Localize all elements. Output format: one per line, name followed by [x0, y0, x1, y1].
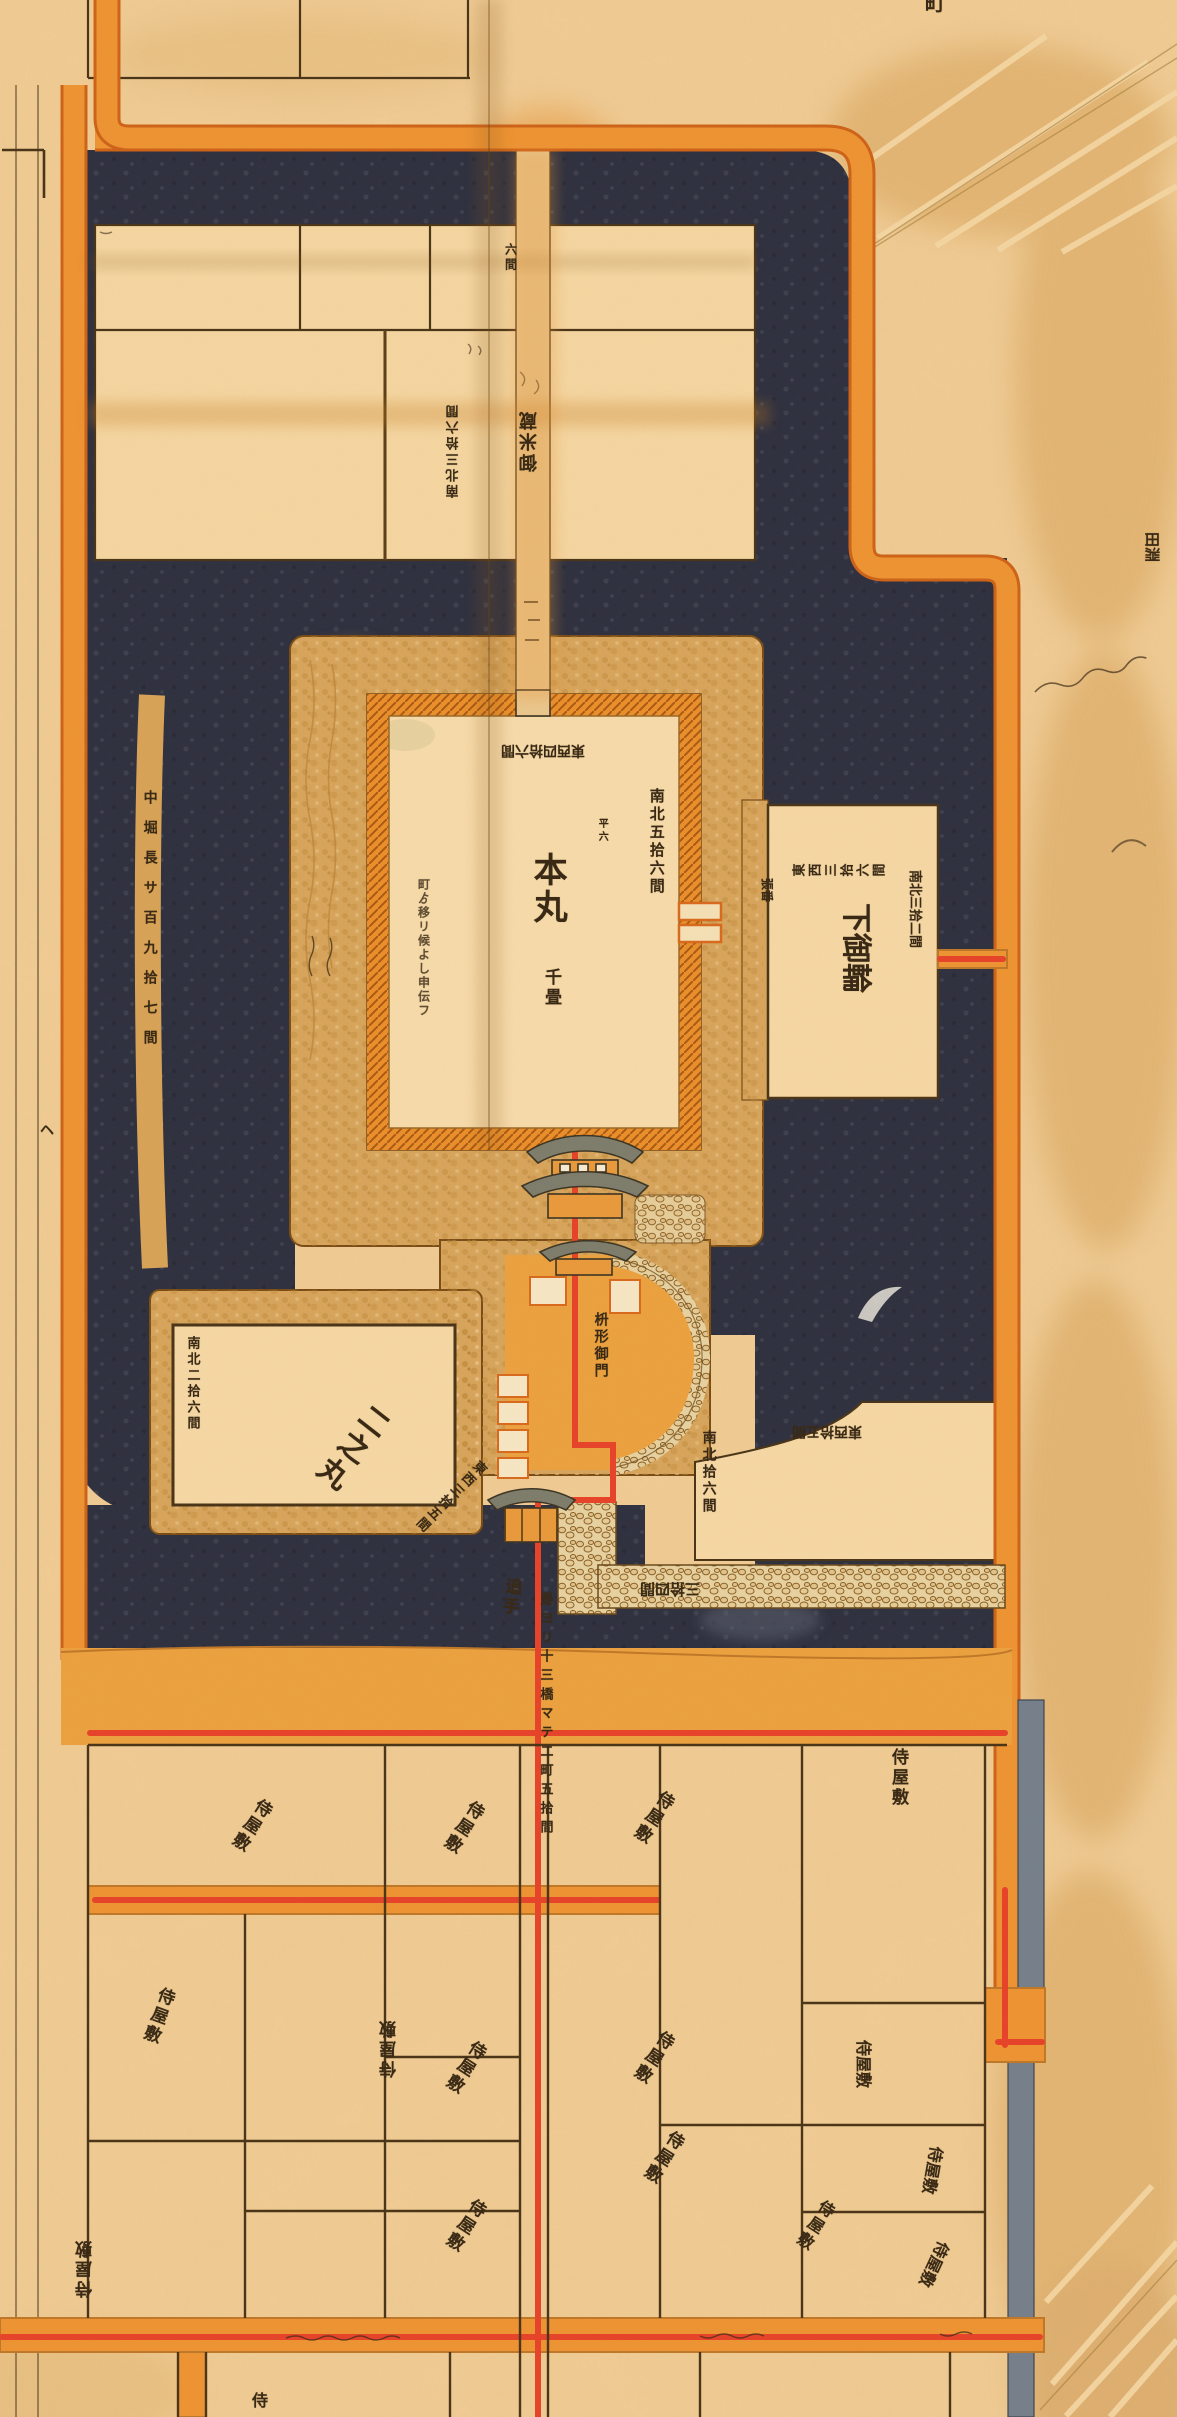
yashiki-l: 侍屋敷: [854, 2040, 872, 2088]
tabuchi-label: 田淵: [1143, 532, 1160, 562]
yashiki-c: 侍屋敷: [437, 1796, 486, 1857]
yashiki-b: 侍屋敷: [627, 1786, 676, 1847]
honmaru-dim-ns: 南北五拾六間: [648, 788, 665, 896]
otemon-label: 追手: [497, 1576, 521, 1618]
ninomaru-dim-ns: 南北二拾六間: [184, 1336, 199, 1432]
seplot-dim-ns: 南北拾六間: [700, 1430, 716, 1515]
bailey-dim-ns: 南北三拾六間: [447, 402, 462, 498]
michinori-note: 是ヨリ十三橋マテ二町五拾間: [537, 1592, 552, 1839]
barbican-label: 枡形御門: [592, 1312, 608, 1380]
shimokuruwa-label: 下御輪: [838, 903, 872, 993]
axis-road-note: 六間: [503, 243, 516, 273]
bailey-plot-label: 御米蔵: [520, 409, 540, 472]
seplot-dim-ew: 東西拾五間: [792, 1422, 862, 1438]
honmaru-label: 本丸: [528, 852, 566, 926]
yashiki-g: 侍屋敷: [439, 2036, 488, 2097]
nakabori-note: 中堀長サ百九拾七間: [141, 790, 157, 1060]
ninomaru-label: 二之丸: [307, 1396, 394, 1495]
yashiki-n: 侍屋敷: [915, 2238, 952, 2289]
honmaru-sub-label: 千畳: [541, 968, 560, 1008]
map-canvas[interactable]: 本丸千畳南北五拾六間東西四拾六間町ゟ移リ候よし申伝フ平六御米蔵南北三拾六間六間下…: [0, 0, 1177, 2417]
honmaru-tiny-note: 平六: [596, 818, 607, 844]
yashiki-i: 侍屋敷: [637, 2126, 686, 2187]
honmaru-note: 町ゟ移リ候よし申伝フ: [416, 878, 429, 1018]
labels-layer: 本丸千畳南北五拾六間東西四拾六間町ゟ移リ候よし申伝フ平六御米蔵南北三拾六間六間下…: [0, 0, 1177, 2417]
honmaru-dim-ew: 東西四拾六間: [501, 741, 585, 757]
yashiki-m: 侍屋敷: [919, 2145, 945, 2195]
yashiki-k: 侍屋敷: [77, 2238, 96, 2298]
shimokuruwa-dim-ew: 東西三拾六間: [792, 865, 888, 880]
yashiki-j: 侍屋敷: [439, 2194, 488, 2255]
yashiki-f: 侍屋敷: [381, 2018, 400, 2078]
ninomaru-dim-ew: 東西三拾五間: [410, 1456, 488, 1534]
yashiki-a: 侍屋敷: [888, 1748, 907, 1808]
yashiki-h: 侍屋敷: [627, 2026, 676, 2087]
stonewall-dim: 三拾四間: [640, 1580, 700, 1597]
he-mark: ヘ: [40, 1124, 54, 1140]
yashiki-d: 侍屋敷: [225, 1794, 274, 1855]
shimokuruwa-dim-ns: 南北三拾二間: [906, 870, 921, 948]
shimokuruwa-tiny: 張番: [760, 878, 773, 902]
yashiki-partial: 侍: [252, 2392, 268, 2410]
yashiki-e: 侍屋敷: [137, 1984, 175, 2047]
machi-char: 町: [925, 0, 945, 14]
yashiki-o: 侍屋敷: [791, 2196, 837, 2254]
